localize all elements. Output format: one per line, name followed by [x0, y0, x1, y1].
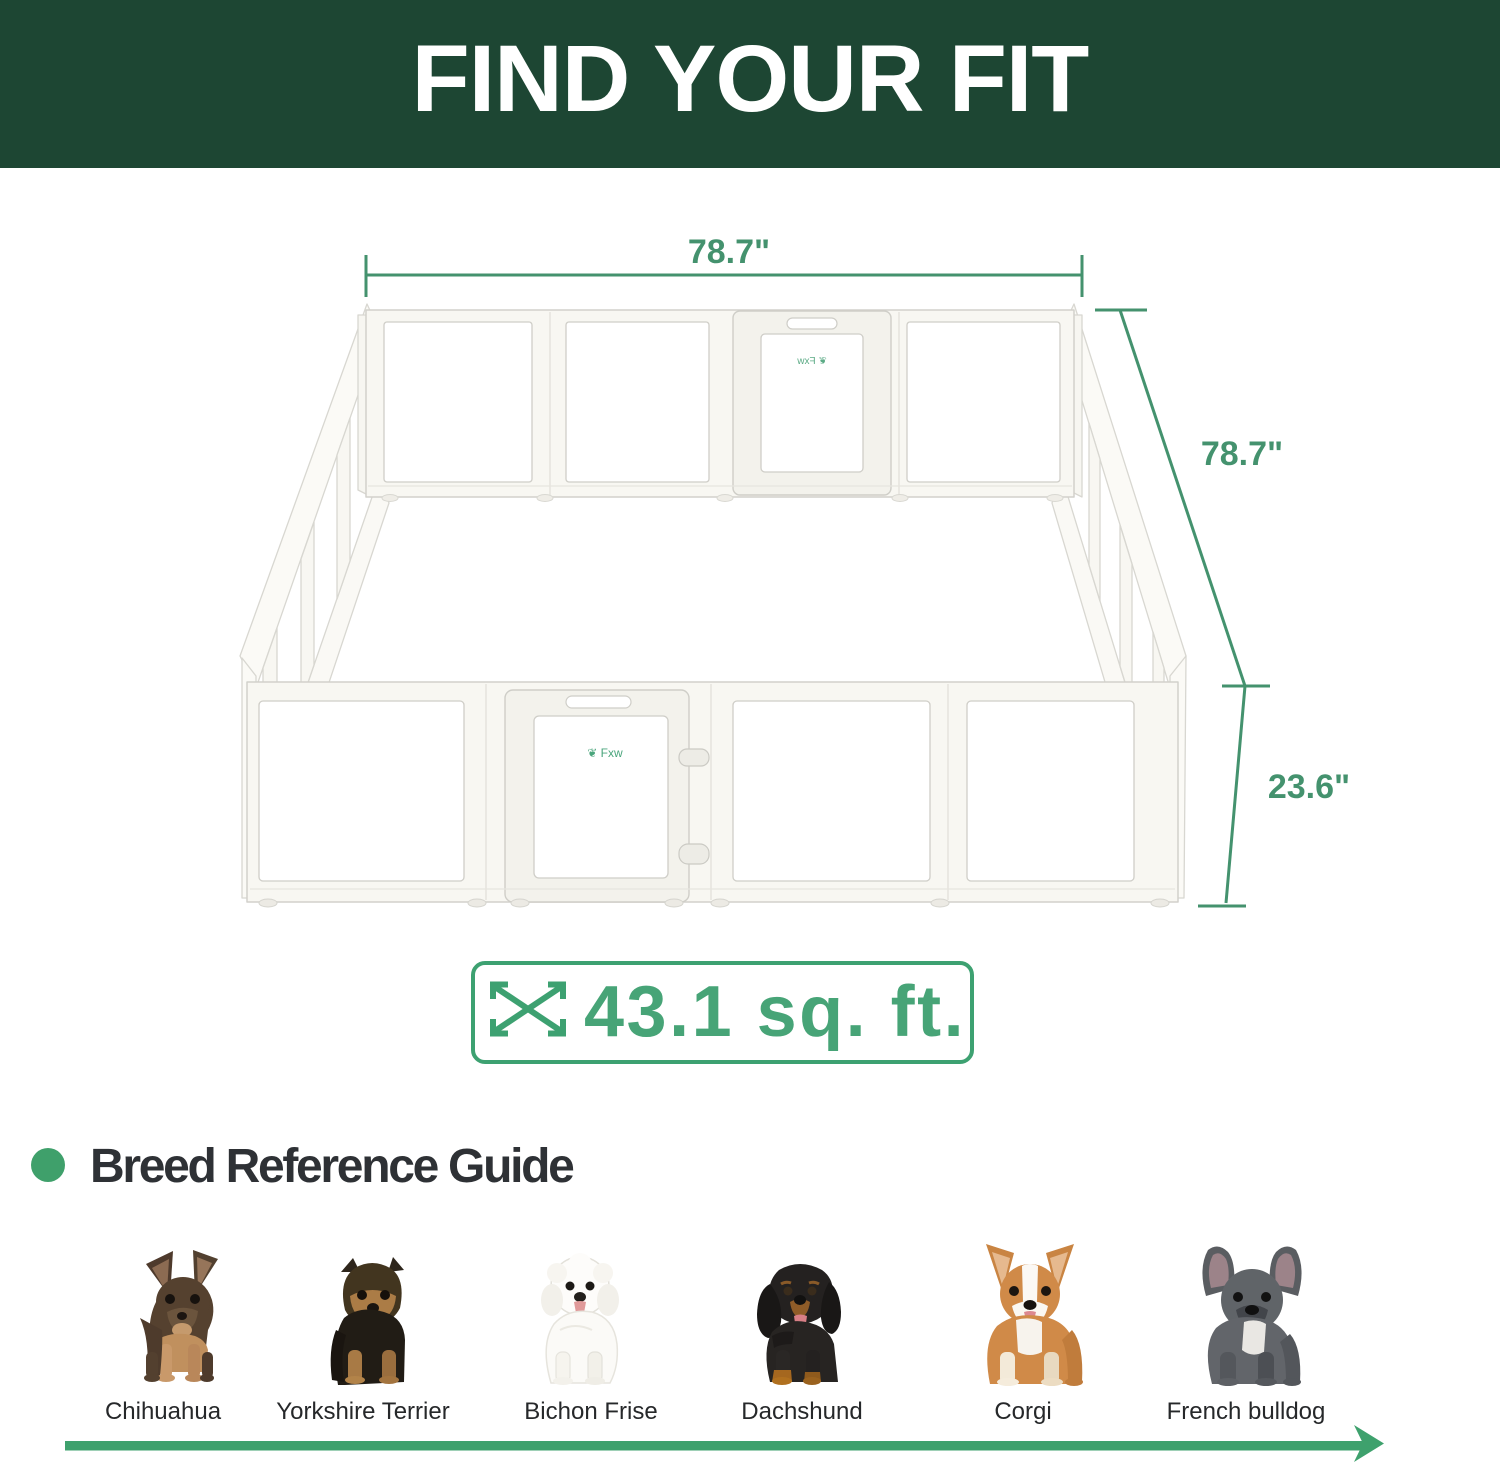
svg-text:78.7": 78.7" — [1201, 435, 1283, 473]
svg-text:❦ Fxw: ❦ Fxw — [587, 746, 623, 760]
svg-text:23.6": 23.6" — [1268, 768, 1350, 806]
svg-text:❦ Fxw: ❦ Fxw — [796, 356, 826, 367]
svg-text:78.7": 78.7" — [688, 233, 770, 271]
